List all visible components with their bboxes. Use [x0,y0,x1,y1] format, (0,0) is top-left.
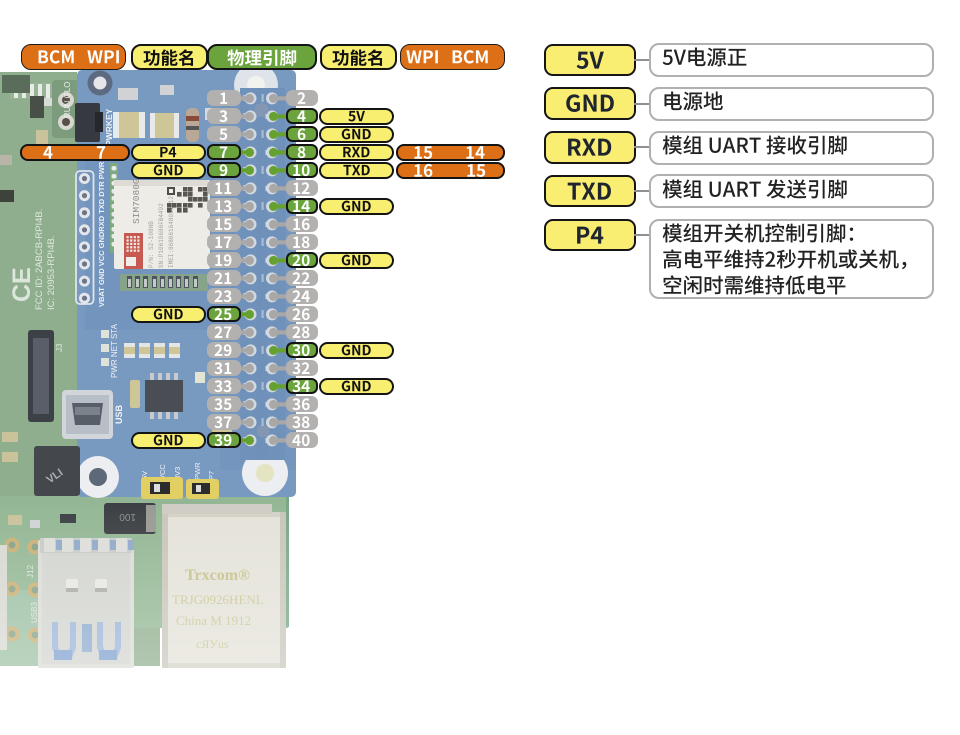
svg-text:IC: 20953-RPI4B.: IC: 20953-RPI4B. [46,236,57,310]
svg-text:J3: J3 [55,343,64,352]
svg-text:PWR NET STA: PWR NET STA [110,323,119,378]
svg-text:P/N: S2-108HB: P/N: S2-108HB [148,221,155,268]
svg-text:SN:P10619686FB4492: SN:P10619686FB4492 [158,203,165,268]
svg-text:PWR: PWR [193,462,202,480]
svg-text:RUN GLO: RUN GLO [63,82,72,118]
svg-text:VBAT GND VCC GNDRXD TXD DTR PW: VBAT GND VCC GNDRXD TXD DTR PWR [97,161,106,307]
svg-text:SIM7080G: SIM7080G [131,178,142,224]
svg-text:P7: P7 [207,471,216,480]
svg-text:USB: USB [114,404,124,424]
svg-text:CE: CE [8,267,36,302]
